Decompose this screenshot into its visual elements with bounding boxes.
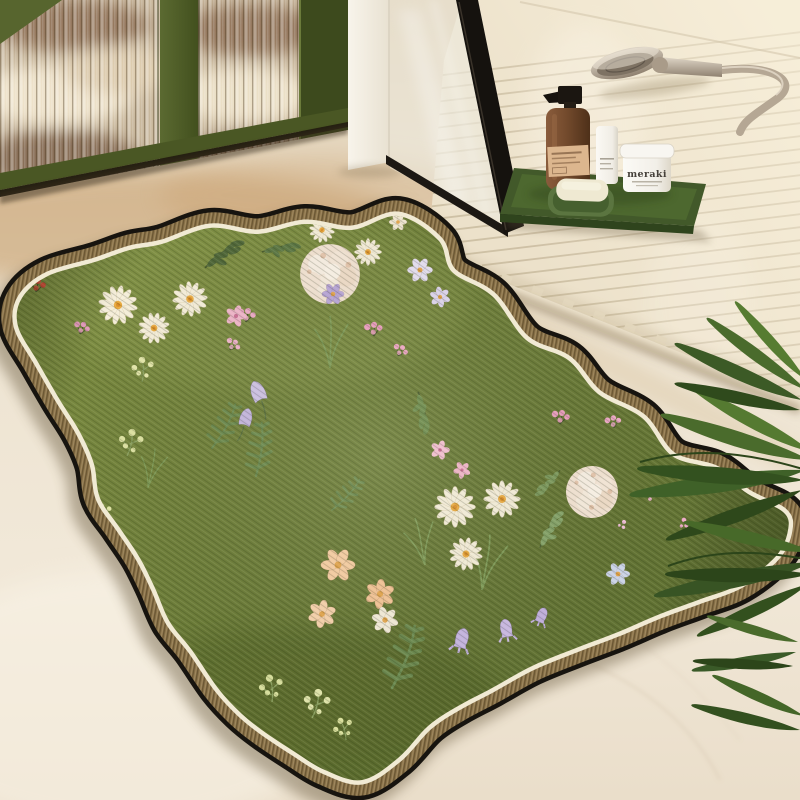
shower-head-joint	[652, 57, 668, 73]
cosmetic-tube	[596, 126, 618, 184]
cream-jar: meraki	[620, 144, 674, 192]
tube-label-line	[600, 158, 614, 160]
bathroom-scene: meraki	[0, 0, 800, 800]
jar-label-line-2	[636, 185, 658, 186]
jar-lid	[620, 144, 674, 158]
tube-label-line-2	[600, 163, 611, 164]
jar-label-line	[632, 181, 662, 183]
bottle-label	[547, 145, 590, 177]
pillar-face	[348, 0, 390, 170]
jar-label-text: meraki	[627, 169, 667, 180]
scene-canvas: meraki	[0, 0, 800, 800]
tube-body	[596, 126, 618, 184]
soap-highlight	[561, 181, 601, 190]
tube-label-line-3	[600, 168, 613, 169]
pump-cap	[558, 86, 582, 104]
